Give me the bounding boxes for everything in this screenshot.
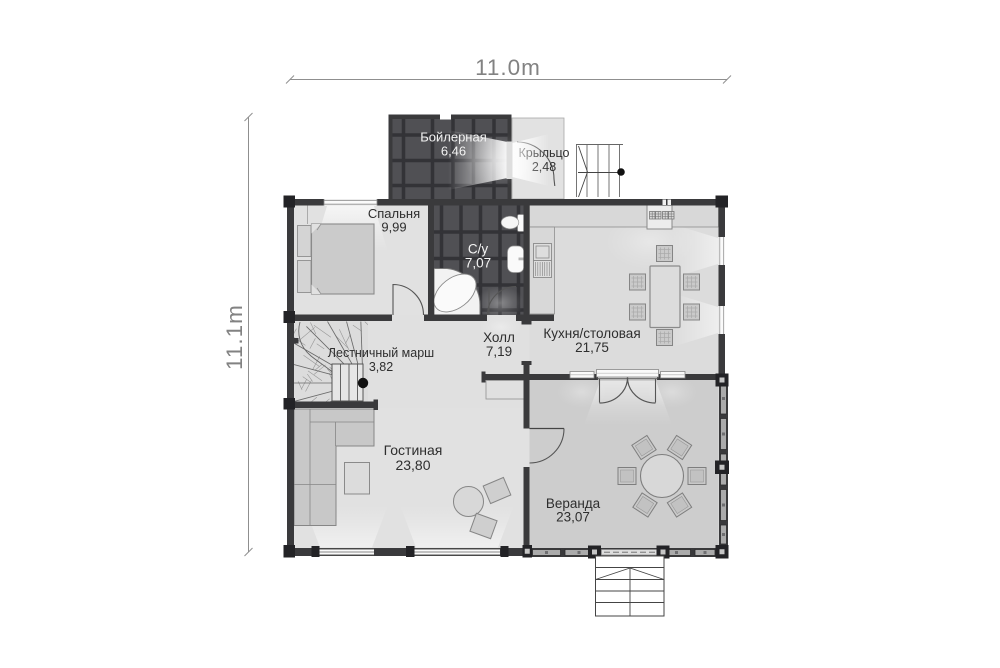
svg-text:6,46: 6,46 (441, 144, 466, 159)
svg-text:Гостиная: Гостиная (384, 442, 443, 458)
svg-text:23,07: 23,07 (556, 510, 590, 525)
svg-text:21,75: 21,75 (575, 340, 609, 355)
svg-text:С/у: С/у (468, 242, 489, 257)
svg-text:Бойлерная: Бойлерная (420, 130, 487, 145)
svg-text:Холл: Холл (483, 330, 515, 345)
svg-text:3,82: 3,82 (369, 360, 393, 374)
svg-text:Лестничный марш: Лестничный марш (328, 346, 434, 360)
svg-text:9,99: 9,99 (381, 220, 406, 235)
svg-text:Кухня/столовая: Кухня/столовая (543, 326, 640, 341)
svg-text:7,19: 7,19 (486, 344, 512, 359)
svg-text:23,80: 23,80 (395, 457, 430, 473)
svg-text:7,07: 7,07 (465, 256, 491, 271)
svg-text:11.1m: 11.1m (222, 304, 247, 370)
svg-text:11.0m: 11.0m (475, 55, 541, 80)
